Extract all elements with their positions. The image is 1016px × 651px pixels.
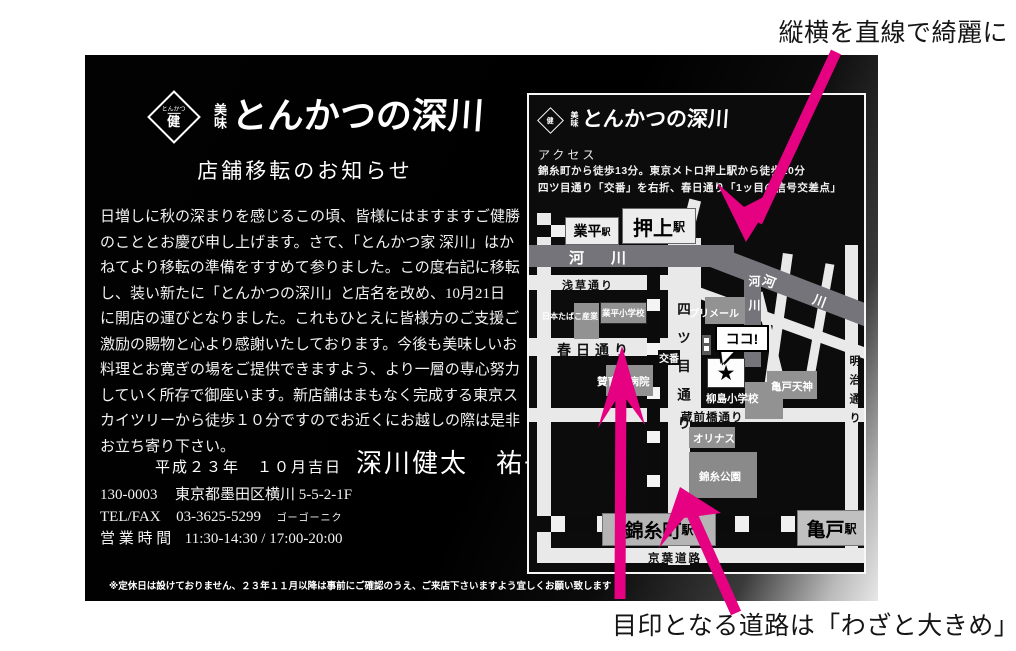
tel-kana: ゴーゴーニク	[277, 513, 343, 524]
traffic-signal-icon	[702, 335, 711, 355]
building-yanagishima-label: 柳島小学校	[706, 391, 759, 406]
map-logo-name: とんかつの深川	[581, 103, 730, 133]
building-narihira-es-label: 業平小学校	[602, 307, 645, 319]
hours-label: 営 業 時 間	[100, 531, 171, 547]
body-line: ねてより移転の準備をすすめて参りました。この度右記に移転	[100, 256, 530, 282]
station-oshiage: 押上駅	[622, 208, 696, 244]
hours-value: 11:30-14:30 / 17:00-20:00	[185, 531, 343, 547]
closing-names: 深川健太 祐子	[356, 449, 552, 478]
body-line: し、装い新たに「とんかつの深川」と店名を改め、10月21日	[100, 282, 530, 308]
station-narihira-name: 業平	[573, 221, 601, 241]
road-asakusa-label: 浅草通り	[562, 277, 614, 293]
map-logo-bimi: 美味	[570, 111, 578, 127]
map-diamond-icon: 健	[537, 107, 564, 134]
tonkatsu-ken-diamond-icon: とんかつ 健	[147, 90, 201, 144]
tel-line: TEL/FAX 03-3625-5299 ゴーゴーニク	[100, 507, 352, 530]
station-kameido: 亀戸駅	[797, 510, 866, 546]
body-line: 料理とお寛ぎの場をご提供できますよう、より一層の専心努力	[100, 358, 530, 384]
body-line: 激励の賜物と心より感謝いたしております。今後も美味しいお	[100, 333, 530, 359]
building-jt-label: 日本たばこ産業	[542, 311, 598, 322]
page-title: 店舗移転のお知らせ	[85, 155, 525, 185]
address-line: 130-0003 東京都墨田区横川 5-5-2-1F	[100, 485, 352, 507]
hours-line: 営 業 時 間 11:30-14:30 / 17:00-20:00	[100, 529, 352, 551]
street-address: 東京都墨田区横川 5-5-2-1F	[175, 487, 352, 503]
logo-bimi-stack: 美味	[213, 103, 226, 129]
closing-line: 平成２３年 １０月吉日 深川健太 祐子	[155, 443, 555, 480]
koban-marker: 交番	[658, 350, 680, 365]
building-kameido-tenjin-label: 亀戸天神	[771, 379, 813, 394]
postal-code: 130-0003	[100, 487, 158, 503]
annotation-top: 縦横を直線で綺麗に	[778, 13, 1008, 49]
road-yotsume-label: 四ツ目通り	[672, 302, 692, 445]
body-line: 日増しに秋の深まりを感じるこの頃、皆様にはますますご健勝	[100, 205, 530, 231]
annotation-bottom: 目印となる道路は「わざと大きめ」	[612, 606, 1016, 642]
tel-label: TEL/FAX	[100, 509, 161, 525]
address-block: 130-0003 東京都墨田区横川 5-5-2-1F TEL/FAX 03-36…	[100, 485, 352, 551]
building-olinas-label: オリナス	[693, 431, 735, 446]
building-primeel-label: プリメール	[689, 305, 739, 320]
station-oshiage-name: 押上	[633, 212, 673, 241]
diamond-bottom-text: 健	[167, 112, 180, 127]
building-sanikukai-label: 賛育会病院	[597, 374, 650, 389]
road-kasuga-label: 春日通り	[557, 340, 633, 360]
design-proof-page: とんかつ 健 美味 とんかつの深川 店舗移転のお知らせ 日増しに秋の深まりを感じ…	[0, 0, 1016, 651]
flyer-card: とんかつ 健 美味 とんかつの深川 店舗移転のお知らせ 日増しに秋の深まりを感じ…	[85, 55, 878, 601]
road-meiji-label: 明治通り	[846, 355, 862, 431]
body-line: カイツリーから徒歩１０分ですのでお近くにお越しの際は是非	[100, 409, 530, 435]
station-narihira: 業平駅	[565, 217, 619, 245]
body-line: に開店の運びとなりました。これもひとえに皆様方のご支援ご	[100, 307, 530, 333]
building-kinshi-park-label: 錦糸公園	[699, 469, 741, 484]
map-logo: 健 美味 とんかつの深川	[537, 103, 729, 133]
access-line-2: 四ツ目通り「交番」を右折、春日通り「1ッ目の信号交差点」	[538, 180, 841, 195]
river-horizontal-label: 河 川	[569, 247, 632, 268]
footnote: ※定休日は設けておりません、２３年１１月以降は事前にご確認のうえ、ご来店下さいま…	[109, 578, 611, 592]
body-line: していく所存で御座います。新店舗はまもなく完成する東京ス	[100, 384, 530, 410]
road-keiyo-label: 京葉道路	[648, 550, 702, 566]
body-line: のこととお慶び申し上げます。さて、「とんかつ家 深川」はか	[100, 231, 530, 257]
koko-callout: ココ!	[715, 325, 769, 352]
access-line-1: 錦糸町から徒歩13分。東京メトロ押上駅から徒歩10分	[538, 163, 805, 178]
access-map-panel: 健 美味 とんかつの深川 アクセス 錦糸町から徒歩13分。東京メトロ押上駅から徒…	[527, 93, 866, 574]
main-logo: とんかつ 健 美味 とんかつの深川	[147, 87, 484, 139]
body-paragraph: 日増しに秋の深まりを感じるこの頃、皆様にはますますご健勝 のこととお慶び申し上げ…	[100, 205, 530, 460]
access-title: アクセス	[538, 146, 597, 163]
station-kinshicho: 錦糸町駅	[602, 513, 716, 546]
closing-date: 平成２３年 １０月吉日	[155, 460, 342, 476]
station-kameido-name: 亀戸	[806, 515, 844, 542]
tel-number: 03-3625-5299	[176, 509, 261, 525]
river-vertical-label: 河川	[746, 275, 763, 323]
diamond-top-text: とんかつ	[162, 106, 186, 112]
logo-shop-name: とんかつの深川	[230, 87, 486, 139]
station-kinshicho-name: 錦糸町	[624, 516, 681, 543]
